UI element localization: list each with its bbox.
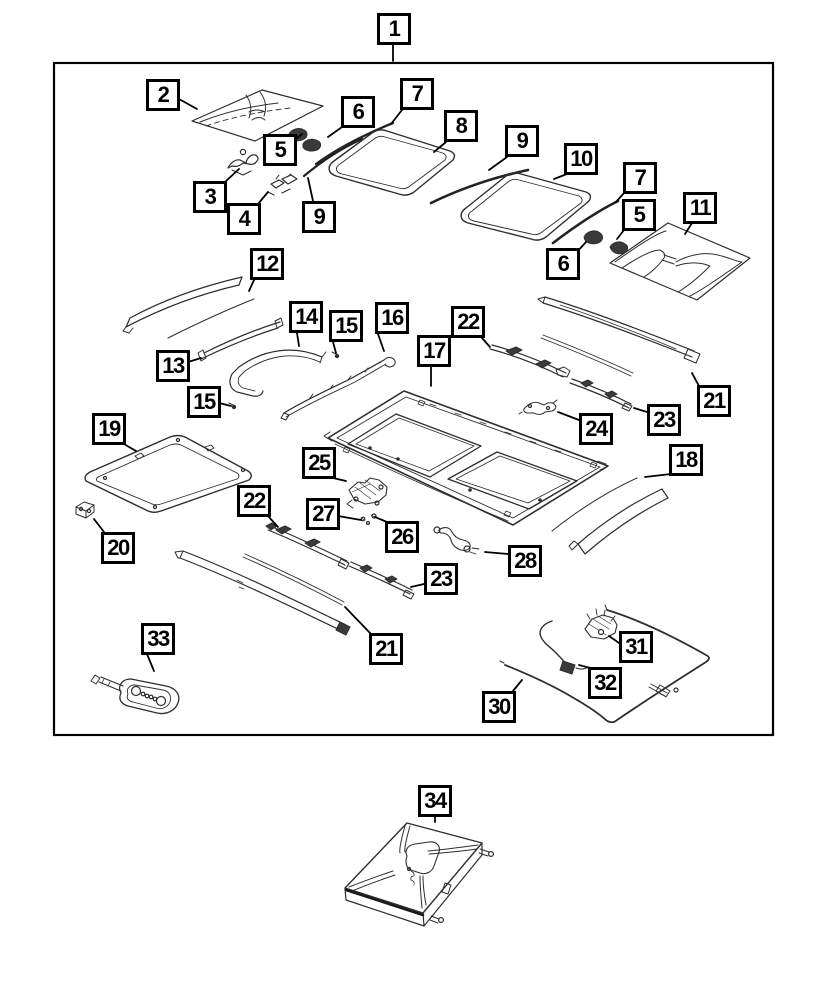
callout-27[interactable]: 27 (306, 498, 340, 530)
callout-21[interactable]: 21 (369, 633, 403, 665)
part-23-rail-left (349, 562, 414, 599)
callout-25[interactable]: 25 (302, 447, 336, 479)
leader-line-16 (378, 334, 384, 351)
leader-line-2 (179, 99, 197, 109)
callout-34[interactable]: 34 (418, 785, 452, 817)
part-21-rail-lower (175, 551, 350, 635)
callout-23[interactable]: 23 (647, 404, 681, 436)
part-5-clip-rear (610, 242, 628, 254)
callout-11[interactable]: 11 (683, 192, 717, 224)
part-17-main-frame (324, 391, 608, 525)
callout-20[interactable]: 20 (101, 532, 135, 564)
callout-33[interactable]: 33 (141, 623, 175, 655)
callout-9[interactable]: 9 (505, 125, 539, 157)
callout-14[interactable]: 14 (289, 301, 323, 333)
part-4-bracket (268, 174, 297, 195)
leader-line-24 (558, 412, 579, 420)
callout-3[interactable]: 3 (193, 181, 227, 213)
leader-line-3 (225, 169, 239, 182)
part-31-motor-unit (585, 609, 617, 639)
part-22-rail-right (490, 345, 570, 377)
leader-line-20 (94, 519, 104, 532)
callout-17[interactable]: 17 (417, 335, 451, 367)
part-11-rear-sunshade (610, 223, 750, 300)
leader-line-9 (489, 157, 507, 170)
callout-9[interactable]: 9 (302, 201, 336, 233)
part-27-screw (361, 517, 369, 524)
callout-12[interactable]: 12 (250, 248, 284, 280)
leader-line-9 (308, 178, 313, 201)
leader-line-30 (513, 680, 522, 691)
callout-15[interactable]: 15 (187, 386, 221, 418)
callout-26[interactable]: 26 (385, 521, 419, 553)
part-6-clip-front (303, 139, 321, 151)
leader-line-7 (391, 110, 402, 124)
callout-24[interactable]: 24 (579, 413, 613, 445)
callout-18[interactable]: 18 (669, 444, 703, 476)
part-30-drive-cable (500, 605, 709, 722)
callout-7[interactable]: 7 (623, 162, 657, 194)
leader-line-19 (124, 444, 136, 451)
exploded-view-drawing (0, 0, 824, 1000)
callout-22[interactable]: 22 (237, 485, 271, 517)
leader-line-15 (333, 342, 336, 353)
callout-16[interactable]: 16 (375, 302, 409, 334)
callout-21[interactable]: 21 (697, 385, 731, 417)
callout-10[interactable]: 10 (564, 143, 598, 175)
callout-22[interactable]: 22 (451, 306, 485, 338)
callout-7[interactable]: 7 (400, 78, 434, 110)
callout-5[interactable]: 5 (622, 199, 656, 231)
part-24-bracket (519, 400, 557, 414)
part-33-crank-tool (91, 675, 179, 714)
leader-line-6 (328, 127, 342, 137)
part-20-clip-block (76, 502, 94, 518)
callout-1[interactable]: 1 (377, 13, 411, 45)
parts-diagram-page: 1265349789107511612131415162217151921232… (0, 0, 824, 1000)
leader-line-12 (249, 280, 254, 291)
leader-line-22 (482, 338, 490, 347)
part-34-wind-deflector (345, 823, 493, 926)
part-21-rail-upper (538, 297, 700, 363)
part-14-crossmember (230, 350, 326, 396)
part-28-link-arm (434, 527, 479, 554)
leader-line-27 (338, 516, 361, 520)
callout-15[interactable]: 15 (329, 310, 363, 342)
part-8-front-glass (329, 130, 454, 195)
callout-2[interactable]: 2 (146, 79, 180, 111)
leader-line-18 (645, 474, 671, 477)
part-12-strip (123, 277, 242, 333)
callout-23[interactable]: 23 (424, 563, 458, 595)
leader-line-23 (634, 408, 647, 412)
callout-6[interactable]: 6 (341, 96, 375, 128)
part-23-rail-right (570, 379, 632, 411)
leader-line-31 (609, 636, 619, 643)
callout-28[interactable]: 28 (508, 545, 542, 577)
leader-line-14 (297, 333, 299, 346)
part-19-seal-ring (85, 436, 251, 513)
callout-32[interactable]: 32 (588, 667, 622, 699)
callout-31[interactable]: 31 (619, 631, 653, 663)
part-21-rail-rod (541, 335, 633, 376)
callout-5[interactable]: 5 (263, 134, 297, 166)
callout-13[interactable]: 13 (156, 350, 190, 382)
callout-8[interactable]: 8 (444, 110, 478, 142)
part-3-bracket (228, 149, 258, 175)
leader-line-33 (147, 654, 154, 671)
callout-6[interactable]: 6 (546, 248, 580, 280)
part-16-guide-rail (281, 357, 395, 420)
callout-30[interactable]: 30 (482, 691, 516, 723)
part-25-motor (347, 478, 387, 508)
leader-line-28 (485, 552, 508, 554)
callout-19[interactable]: 19 (92, 413, 126, 445)
leader-line-5 (617, 230, 624, 239)
leader-line-23 (411, 584, 424, 587)
callout-4[interactable]: 4 (227, 203, 261, 235)
